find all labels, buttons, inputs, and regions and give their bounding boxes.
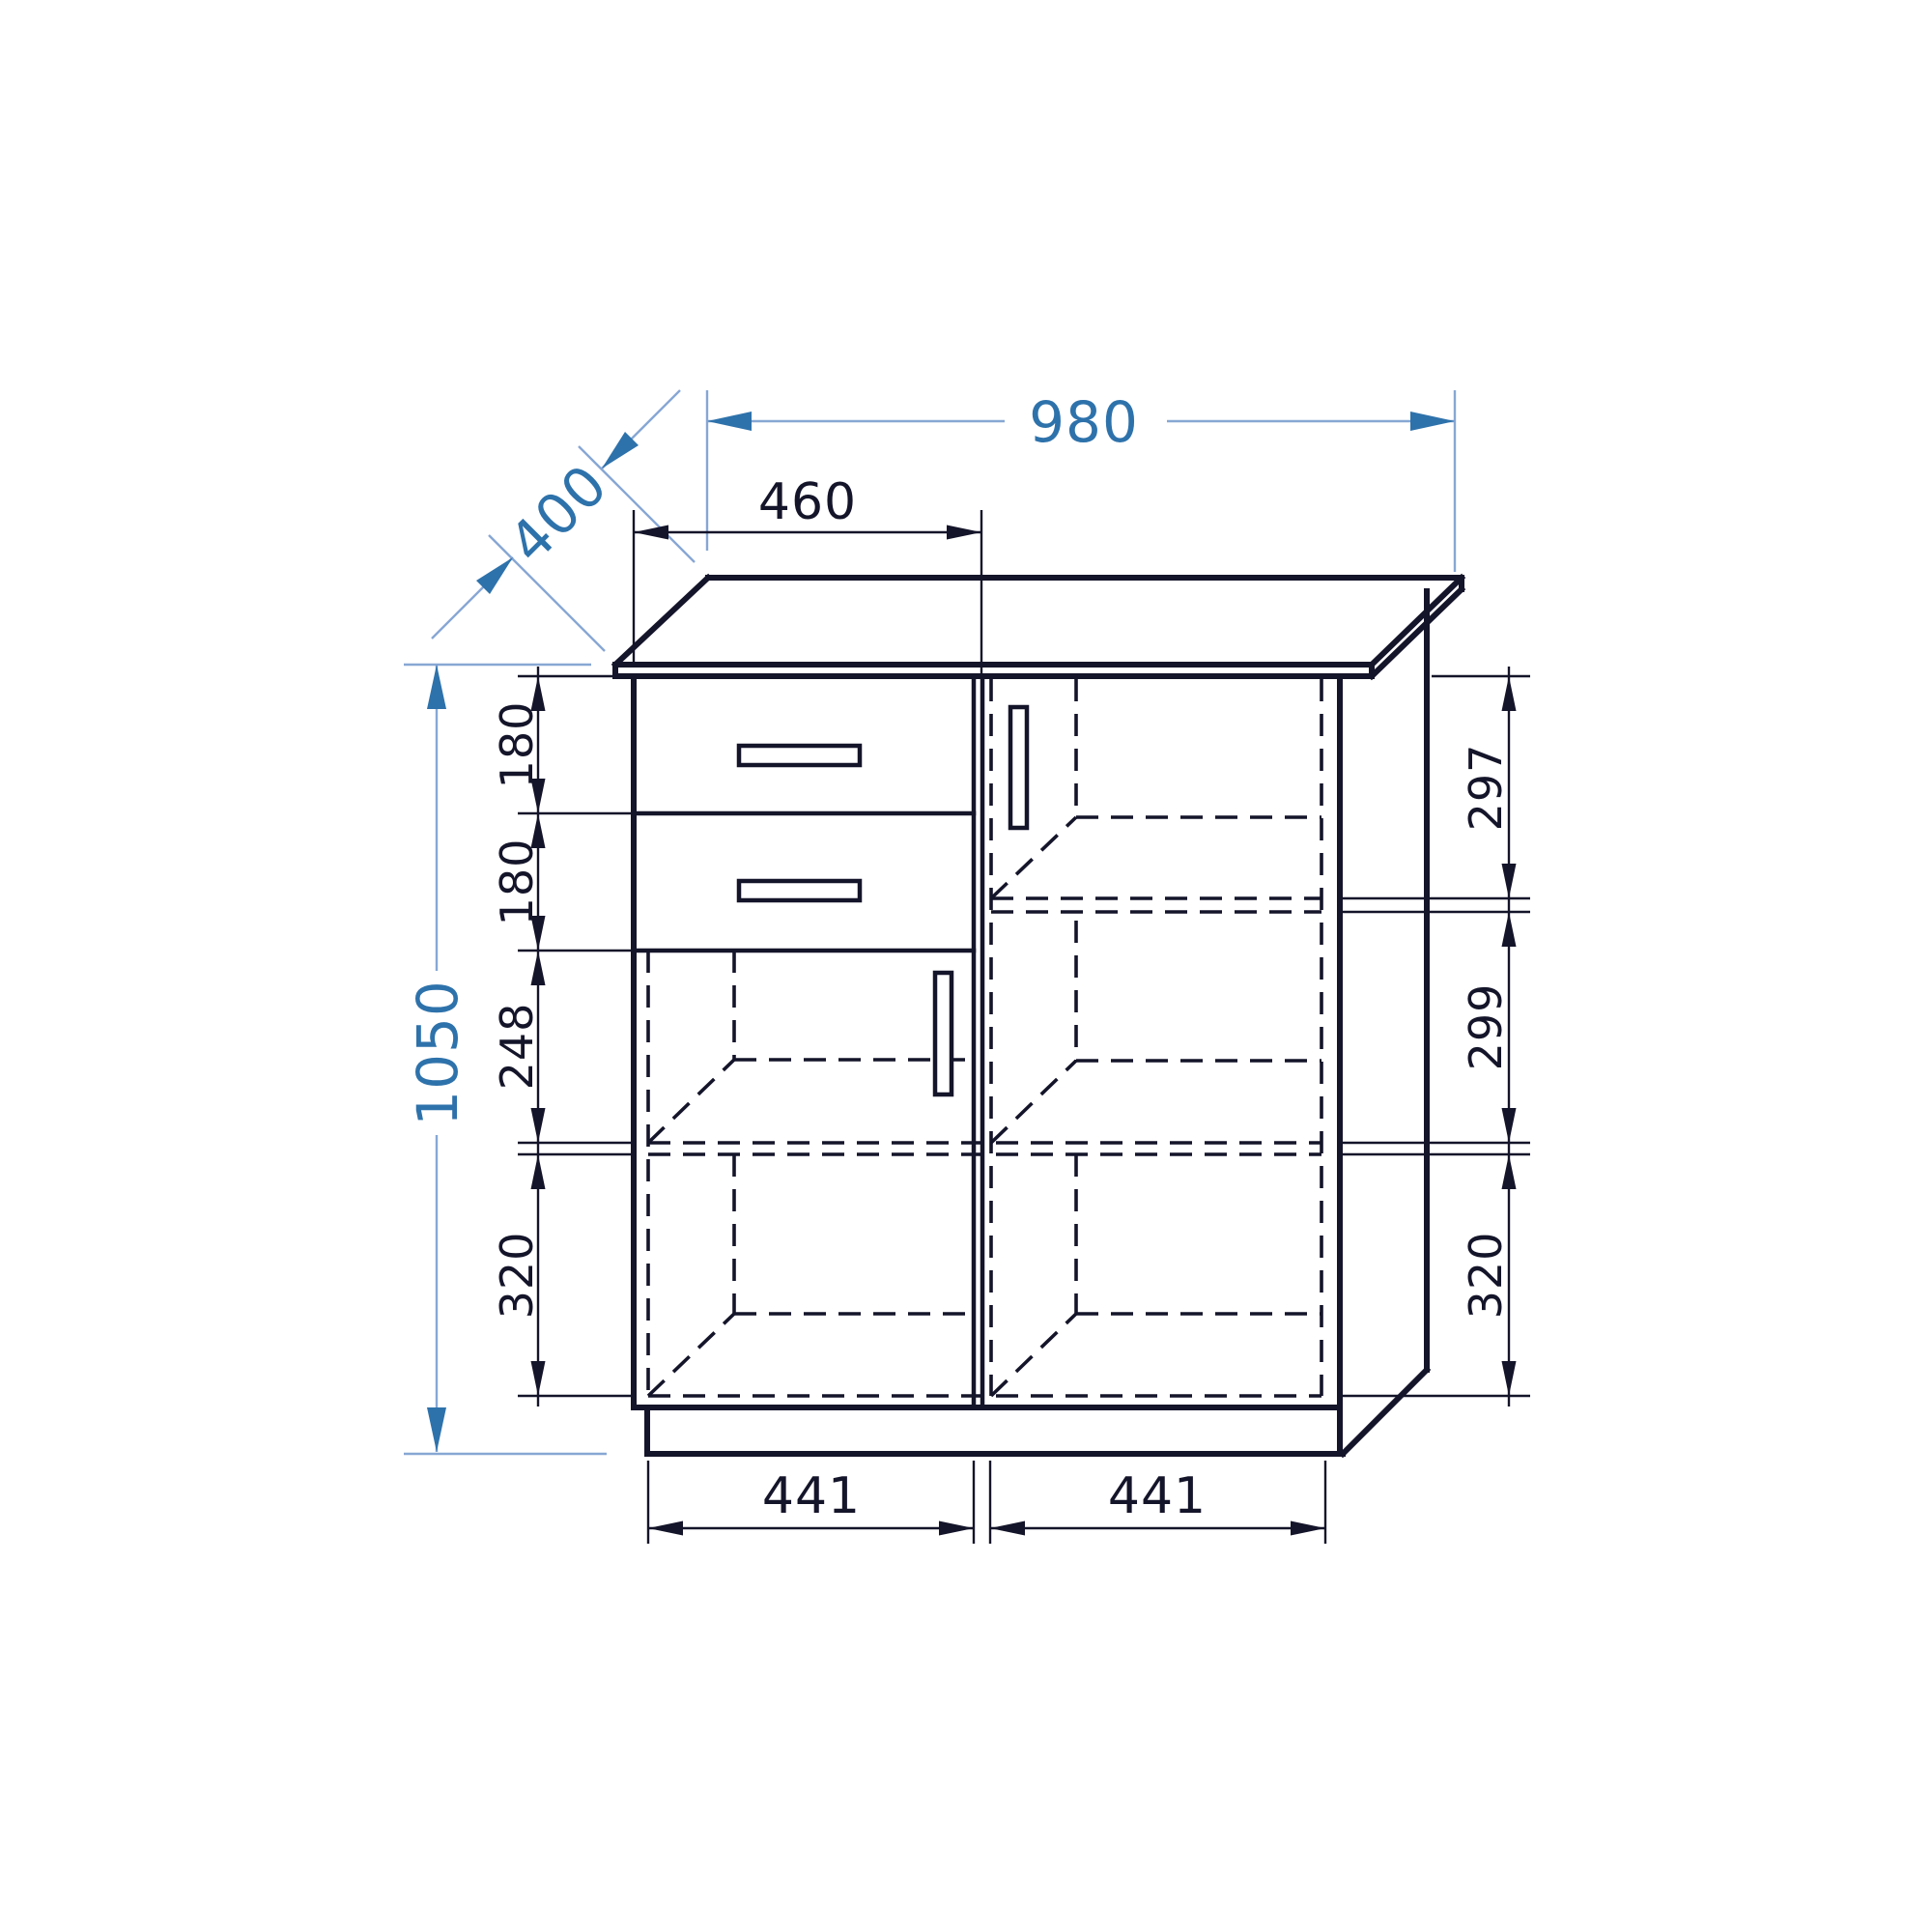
- arrow-left-icon: [634, 526, 668, 540]
- arrow-right-icon: [947, 526, 981, 540]
- dim-label-bottom-width-right: 441: [1108, 1467, 1207, 1525]
- dim-label-right-bottom-height: 320: [1460, 1232, 1512, 1320]
- dim-label-left-door-height: 248: [491, 1003, 543, 1091]
- dim-label-right-top-height: 297: [1460, 744, 1512, 832]
- arrow-down-icon: [427, 1407, 446, 1452]
- dim-label-left-section-width: 460: [758, 473, 857, 531]
- right-door-handle: [1010, 707, 1027, 828]
- drawing-page: 980 400 1050 460: [0, 0, 1932, 1932]
- arrow-left-icon: [707, 412, 752, 431]
- dim-label-total-height: 1050: [405, 980, 470, 1126]
- cabinet-fronts: [634, 676, 982, 1407]
- dim-label-left-bottom-height: 320: [491, 1232, 543, 1320]
- dim-label-right-middle-height: 299: [1460, 983, 1512, 1071]
- dimension-bottom-widths: [648, 1461, 1325, 1544]
- dimension-left-section-width: [634, 510, 981, 676]
- left-door-handle: [935, 973, 952, 1094]
- dim-label-drawer1-height: 180: [491, 701, 543, 789]
- drawer2-handle: [739, 881, 860, 900]
- dim-label-total-width: 980: [1029, 389, 1139, 455]
- arrow-right-icon: [1410, 412, 1455, 431]
- hidden-interior-edges: [648, 679, 1321, 1396]
- arrow-up-icon: [427, 665, 446, 709]
- cabinet-top-panel: [615, 578, 1462, 676]
- dim-label-bottom-width-left: 441: [762, 1467, 861, 1525]
- technical-drawing: 980 400 1050 460: [0, 0, 1932, 1932]
- dim-label-drawer2-height: 180: [491, 838, 543, 926]
- cabinet-carcass-outline: [634, 591, 1427, 1454]
- drawer1-handle: [739, 746, 860, 765]
